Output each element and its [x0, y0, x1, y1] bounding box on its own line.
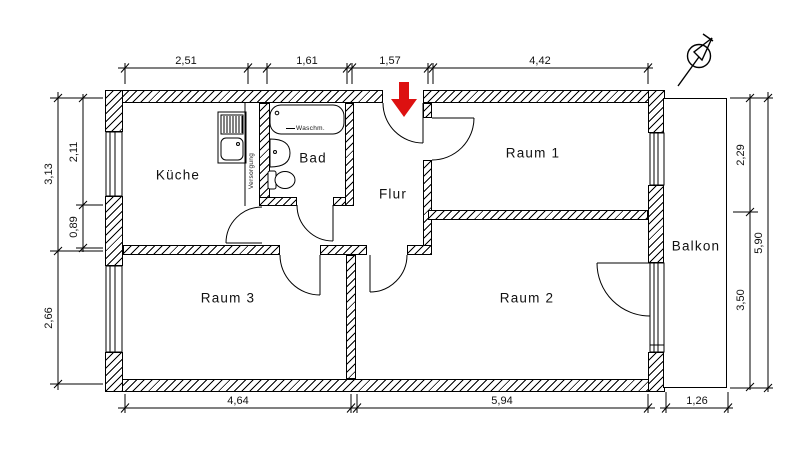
room-label-flur: Flur	[379, 187, 407, 202]
dimension-lines	[50, 63, 773, 413]
balcony-door-window	[650, 263, 664, 352]
floor-plan: 2,51 1,61 1,57 4,42 4,64 5,94 1,26 3,13 …	[0, 0, 800, 470]
bad-door	[297, 205, 333, 241]
kitchen-sink	[221, 138, 243, 160]
kitchen-door	[226, 207, 262, 243]
room-label-raum3: Raum 3	[201, 291, 255, 306]
balcony-door	[597, 263, 650, 316]
dim-left-outer-top: 3,13	[43, 163, 55, 184]
dim-left-inner-bottom: 0,89	[68, 216, 80, 237]
raum3-window	[106, 266, 122, 352]
raum2-door	[370, 255, 407, 292]
room-label-raum1: Raum 1	[506, 146, 560, 161]
plan-linework: 2,51 1,61 1,57 4,42 4,64 5,94 1,26 3,13 …	[0, 0, 800, 470]
windows	[106, 132, 664, 352]
room-label-kueche: Küche	[156, 168, 200, 183]
doors	[226, 103, 650, 316]
raum3-door	[280, 255, 320, 295]
entrance-arrow-icon	[391, 82, 417, 117]
utility-shaft-label: Versorgung	[248, 153, 255, 189]
north-arrow-icon	[678, 34, 713, 86]
dim-bottom-raum2: 5,94	[491, 395, 512, 407]
north-arrow-head	[694, 38, 712, 60]
room-label-balkon: Balkon	[672, 239, 720, 254]
dim-top-bad: 1,61	[296, 55, 317, 67]
dim-top-raum1: 4,42	[529, 55, 550, 67]
dim-bottom-balkon: 1,26	[686, 395, 707, 407]
north-arrow-fletch	[703, 34, 713, 41]
raum1-door	[432, 118, 474, 160]
dim-top-kueche: 2,51	[175, 55, 196, 67]
dim-right-outer: 5,90	[753, 232, 765, 253]
dim-left-inner-top: 2,11	[68, 142, 80, 163]
washbasin	[270, 139, 290, 167]
dim-bottom-raum3: 4,64	[227, 395, 248, 407]
washing-machine-label: Waschm.	[296, 125, 325, 132]
raum1-window	[650, 133, 664, 185]
dim-top-flur: 1,57	[379, 55, 400, 67]
dim-right-inner-top: 2,29	[735, 144, 747, 165]
dim-left-outer-bottom: 2,66	[43, 307, 55, 328]
room-label-raum2: Raum 2	[500, 291, 554, 306]
room-label-bad: Bad	[299, 151, 327, 166]
dim-right-inner-bottom: 3,50	[735, 289, 747, 310]
toilet-bowl	[275, 172, 295, 189]
dim-line-left	[58, 92, 83, 390]
kitchen-window	[106, 132, 122, 196]
